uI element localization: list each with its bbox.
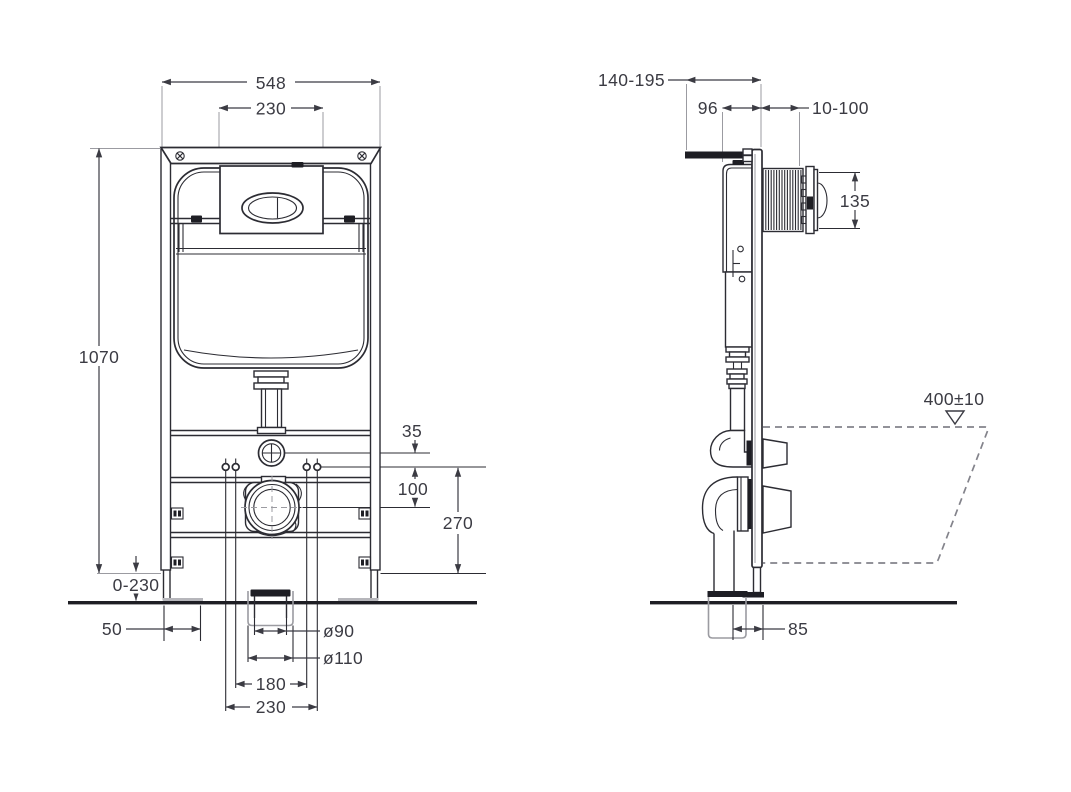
- dim-bolt-outer: 230: [226, 697, 318, 717]
- clip-icon: [359, 508, 371, 519]
- dim-outlet-offset-label: 85: [788, 619, 808, 639]
- level-mark-icon: [946, 411, 964, 424]
- dim-plate-height-label: 135: [840, 191, 870, 211]
- dim-plate-width-label: 230: [256, 99, 286, 119]
- dim-bolt-inner-label: 180: [256, 674, 286, 694]
- flush-plate-side: [802, 167, 828, 234]
- dim-bolt-outer-label: 230: [256, 697, 286, 717]
- plate-tab: [292, 162, 304, 168]
- side-view: 140-195 96 10-100 400±10: [598, 70, 988, 640]
- dim-bolts-to-drain-label: 100: [398, 479, 428, 499]
- dim-leg-extension: 0-230: [106, 556, 166, 601]
- clip-icon: [172, 557, 184, 568]
- dim-outlet-pipe: ø90: [255, 621, 355, 641]
- dim-supply-offset-label: 35: [402, 421, 422, 441]
- floor-line-front: [68, 601, 477, 604]
- wc-pan-outline: 400±10: [763, 389, 988, 563]
- dim-supply-offset: 35: [402, 421, 422, 452]
- dim-outlet-pipe-label: ø90: [323, 621, 354, 641]
- dim-wall-finish-label: 10-100: [812, 98, 869, 118]
- dim-pan-height-label: 400±10: [924, 389, 985, 409]
- dim-wall-finish: 10-100: [761, 98, 869, 118]
- dim-depth-adjust: 140-195: [598, 70, 761, 90]
- dim-frame-height: 1070: [72, 149, 126, 574]
- flush-pipe-front: [254, 371, 288, 434]
- dim-outlet-sleeve: ø110: [248, 648, 363, 668]
- frame-top-rail: [161, 148, 381, 164]
- dim-cistern-depth-label: 96: [698, 98, 718, 118]
- clip-icon: [172, 508, 184, 519]
- access-sleeve: [763, 169, 803, 232]
- dim-drain-height: 270: [443, 468, 473, 573]
- dim-frame-height-label: 1070: [79, 347, 120, 367]
- adjustable-feet: [163, 570, 378, 602]
- drain-clamp: [241, 476, 303, 539]
- floor-outlet: [248, 590, 293, 663]
- dim-leg-extension-label: 0-230: [113, 575, 160, 595]
- drain-bend-side: [703, 477, 754, 597]
- dim-depth-adjust-label: 140-195: [598, 70, 665, 90]
- dim-bolts-to-drain: 100: [398, 468, 428, 507]
- installation-diagram: 548 230 1070 0-230 35 100: [0, 0, 1071, 792]
- flush-plate: [220, 162, 323, 234]
- dim-drain-height-label: 270: [443, 513, 473, 533]
- clip-icon: [359, 557, 371, 568]
- dim-bolt-inner: 180: [236, 674, 307, 694]
- pan-connection-stubs: [763, 439, 791, 533]
- dim-plate-width: 230: [219, 99, 323, 119]
- dim-foot-width-label: 50: [102, 619, 122, 639]
- cistern-side: [723, 160, 752, 362]
- dim-outlet-offset: 85: [733, 619, 808, 639]
- technical-drawing-page: 548 230 1070 0-230 35 100: [0, 0, 1071, 792]
- floor-line-side: [650, 601, 957, 604]
- dim-outlet-sleeve-label: ø110: [323, 648, 363, 668]
- supply-connection: [259, 440, 285, 466]
- wall-bracket: [685, 149, 752, 162]
- dim-frame-width-label: 548: [256, 73, 286, 93]
- front-view: 548 230 1070 0-230 35 100: [68, 72, 486, 717]
- flush-pipe-side: [711, 362, 753, 467]
- dim-foot-width: 50: [102, 606, 201, 642]
- dim-frame-width: 548: [162, 72, 380, 93]
- dim-cistern-depth: 96: [698, 98, 761, 118]
